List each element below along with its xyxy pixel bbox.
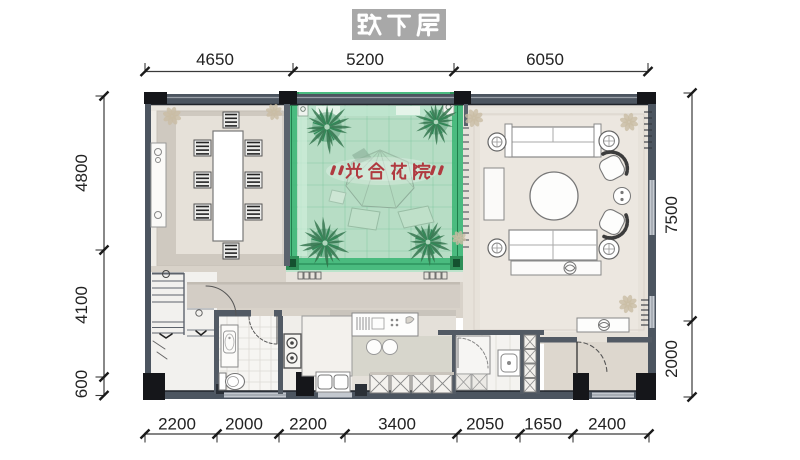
svg-text:2000: 2000 xyxy=(662,340,681,378)
svg-text:2400: 2400 xyxy=(588,415,626,434)
svg-text:7500: 7500 xyxy=(662,196,681,234)
svg-text:6050: 6050 xyxy=(526,50,564,69)
svg-text:1650: 1650 xyxy=(524,415,562,434)
svg-text:2200: 2200 xyxy=(158,415,196,434)
svg-text:2000: 2000 xyxy=(225,415,263,434)
svg-text:4650: 4650 xyxy=(196,50,234,69)
svg-text:2200: 2200 xyxy=(289,415,327,434)
svg-text:5200: 5200 xyxy=(346,50,384,69)
svg-text:600: 600 xyxy=(72,370,91,398)
svg-text:4800: 4800 xyxy=(72,154,91,192)
svg-text:3400: 3400 xyxy=(378,415,416,434)
svg-text:2050: 2050 xyxy=(466,415,504,434)
svg-text:4100: 4100 xyxy=(72,286,91,324)
